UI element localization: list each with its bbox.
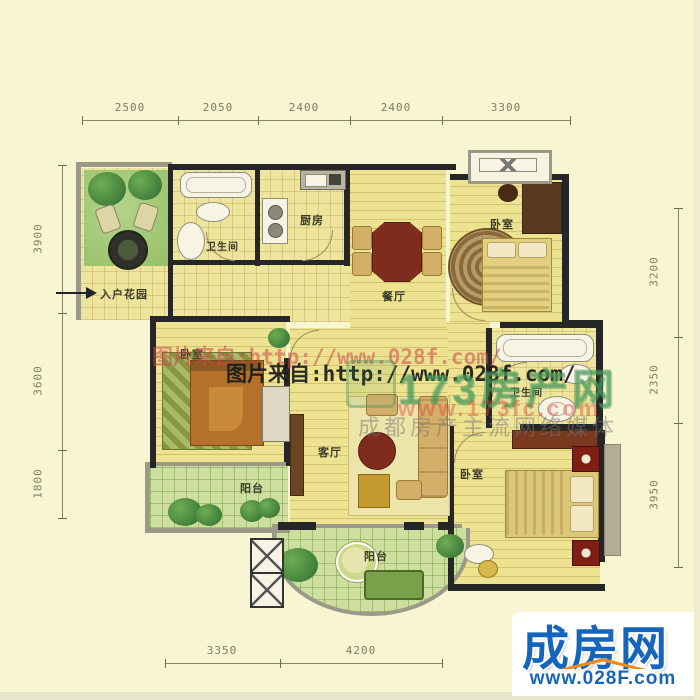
window-icon [479, 158, 537, 172]
bay-window [468, 150, 552, 184]
dimension-label: 2350 [648, 355, 661, 405]
site-logo: 成房网 www.028F.com [512, 612, 694, 696]
dimension-label: 1800 [32, 459, 45, 509]
dimension-tick [58, 313, 67, 314]
dining-chair [422, 226, 442, 250]
nightstand [572, 446, 600, 472]
nightstand [572, 540, 600, 566]
tree-icon [88, 172, 126, 206]
kitchen-sink [305, 174, 327, 187]
plant-icon [196, 504, 222, 526]
garden-table [108, 230, 148, 270]
side-table [358, 474, 390, 508]
dimension-tick [442, 659, 443, 668]
kitchen-counter [300, 170, 346, 190]
wall-segment [168, 166, 173, 320]
dining-chair [352, 226, 372, 250]
window-sill [156, 462, 286, 466]
dining-table [372, 222, 422, 282]
dimension-label: 2400 [371, 101, 421, 114]
dimension-label: 3600 [32, 356, 45, 406]
pillow [518, 242, 547, 258]
room-label-balcony1: 阳台 [240, 480, 264, 496]
bathtub [180, 172, 252, 198]
dimension-tick [165, 659, 166, 668]
wall-segment [255, 168, 260, 266]
room-label-bath1: 卫生间 [206, 238, 239, 253]
room-label-bed3: 卧室 [460, 466, 484, 482]
blanket [506, 471, 566, 535]
room-label-kitchen: 厨房 [300, 212, 324, 228]
dimension-label: 3900 [32, 214, 45, 264]
blanket [209, 387, 243, 431]
burner-icon [268, 223, 283, 238]
shaft-x-icon [250, 538, 284, 574]
bottom-dimension-line [165, 663, 442, 664]
dimension-label: 2050 [193, 101, 243, 114]
entry-corridor [172, 264, 350, 322]
dimension-label: 4200 [336, 644, 386, 657]
toilet [196, 202, 230, 222]
nightstand [262, 386, 290, 442]
closet-niche [604, 444, 621, 556]
decor-item [498, 184, 518, 202]
bed [505, 470, 599, 538]
bed [482, 238, 552, 312]
dimension-label: 3350 [197, 644, 247, 657]
dimension-tick [674, 208, 683, 209]
wall-segment [145, 528, 290, 533]
site-logo-url: www.028F.com [512, 668, 694, 690]
bathtub-inner [503, 339, 587, 357]
wall-segment [76, 162, 81, 320]
stove [262, 198, 288, 244]
dimension-tick [258, 116, 259, 125]
room-label-living: 客厅 [318, 444, 342, 460]
entry-arrow-icon [86, 287, 97, 299]
dimension-tick [674, 567, 683, 568]
tv-cabinet [290, 414, 304, 496]
pillow [570, 476, 594, 503]
dimension-tick [178, 116, 179, 125]
room-label-bed1: 卧室 [490, 216, 514, 232]
dimension-tick [570, 116, 571, 125]
dimension-tick [280, 659, 281, 668]
right-dimension-line [678, 208, 679, 567]
room-label-dining: 餐厅 [382, 288, 406, 304]
watermark-tagline: 成都房产主流网络媒体 [358, 410, 618, 442]
pillow [570, 505, 594, 532]
plant-icon [258, 498, 280, 518]
wall-segment [170, 260, 350, 265]
burner-icon [268, 205, 283, 220]
sink [177, 222, 205, 260]
wall-segment [404, 522, 424, 530]
dimension-tick [442, 116, 443, 125]
shaft-x-icon [250, 572, 284, 608]
tree-icon [128, 170, 162, 200]
dimension-tick [58, 165, 67, 166]
stool [478, 560, 498, 578]
room-label-garden: 入户花园 [100, 286, 148, 302]
dimension-label: 3950 [648, 470, 661, 520]
dimension-tick [674, 337, 683, 338]
pillow [487, 242, 516, 258]
left-dimension-line [62, 165, 63, 518]
wall-segment [452, 584, 605, 591]
plant-icon [436, 534, 464, 558]
wall-segment [278, 522, 316, 530]
wall-segment [500, 322, 600, 328]
bathtub-inner [186, 177, 246, 193]
room-label-balcony2: 阳台 [364, 548, 388, 564]
wall-segment [145, 462, 150, 532]
page-edge [694, 0, 700, 700]
entry-arrow-line [56, 292, 88, 294]
dimension-tick [350, 116, 351, 125]
bench [364, 570, 424, 600]
wall-segment [150, 316, 156, 468]
watermark-site-logo-icon [346, 360, 396, 408]
dimension-tick [82, 116, 83, 125]
dimension-tick [58, 518, 67, 519]
wall-segment [562, 174, 569, 326]
sofa-seat [396, 480, 422, 500]
wall-segment [76, 162, 172, 167]
dimension-tick [674, 423, 683, 424]
dining-chair [352, 252, 372, 276]
wall-segment [150, 316, 290, 322]
wall-segment [438, 522, 454, 530]
dimension-label: 3200 [648, 247, 661, 297]
top-dimension-line [82, 120, 570, 121]
blanket [483, 265, 549, 309]
dimension-label: 2400 [279, 101, 329, 114]
dimension-tick [58, 450, 67, 451]
wardrobe [522, 182, 562, 234]
dimension-label: 3300 [481, 101, 531, 114]
dining-chair [422, 252, 442, 276]
plant-icon [278, 548, 318, 582]
dimension-label: 2500 [105, 101, 155, 114]
floorplan-image: 入户花园 卫生间 厨房 餐厅 卧室 卫生间 卧室 客厅 卧室 阳台 阳台 250… [0, 0, 700, 700]
stove-hob [329, 174, 341, 185]
